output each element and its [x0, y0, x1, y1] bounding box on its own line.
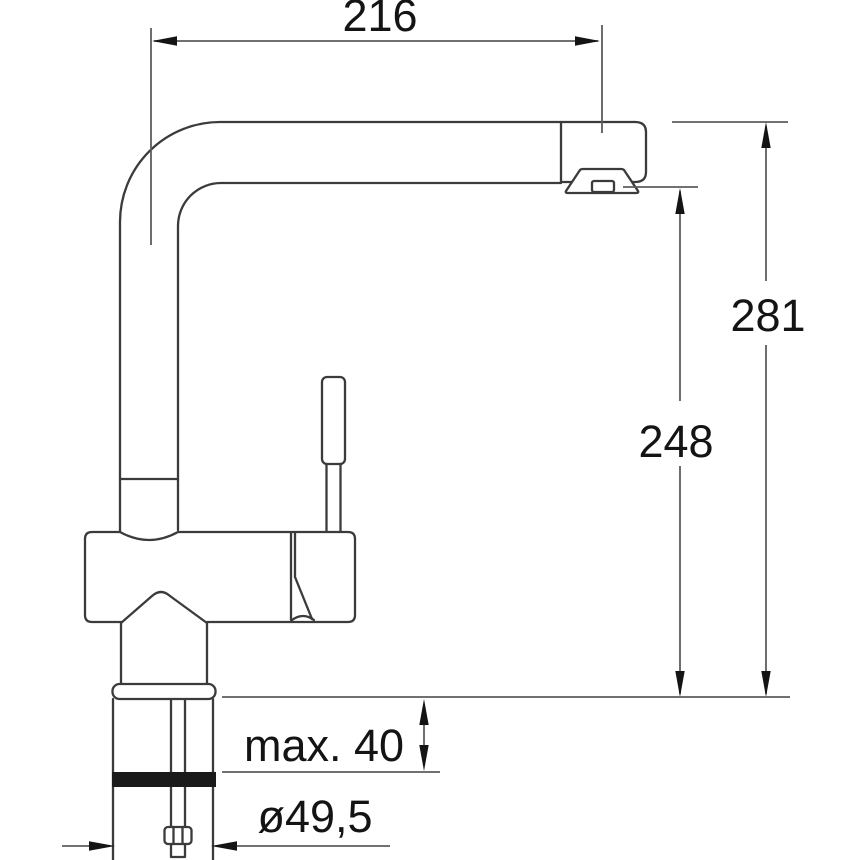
arrowhead-216-right: [575, 36, 600, 46]
faucet-dimension-drawing: 216 281 248 max. 40 ø49,5: [0, 0, 860, 860]
arrowhead-dia-right: [211, 841, 237, 850]
technical-drawing-canvas: 216 281 248 max. 40 ø49,5: [0, 0, 860, 860]
base-flange: [113, 684, 216, 699]
arrowhead-248-down: [675, 671, 684, 697]
stud-lower-end: [171, 844, 185, 857]
mixer-body: [85, 532, 355, 622]
label-overall-height: 281: [730, 290, 805, 341]
arrowhead-216-left: [152, 36, 177, 46]
arrowhead-max40-up: [419, 699, 428, 725]
fastening-nut: [165, 827, 192, 844]
seal-band: [112, 772, 216, 787]
label-max-mounting-thickness: max. 40: [244, 720, 404, 771]
arrowhead-dia-left: [89, 841, 115, 850]
spout-inner-contour: [178, 183, 561, 530]
base-cone: [121, 592, 207, 684]
handle-grip: [322, 377, 345, 464]
label-hole-diameter: ø49,5: [257, 791, 372, 842]
aerator-slot: [592, 181, 614, 192]
arrowhead-281-up: [761, 122, 770, 148]
handle-stem: [327, 464, 341, 531]
arrowhead-max40-down: [419, 745, 428, 771]
label-outlet-height: 248: [638, 416, 713, 467]
arrowhead-248-up: [675, 188, 684, 214]
swivel-seam-diagonal: [295, 533, 312, 619]
label-spout-reach: 216: [342, 0, 417, 41]
threaded-stud: [171, 699, 185, 827]
arrowhead-281-down: [761, 671, 770, 697]
dimension-labels: 216 281 248 max. 40 ø49,5: [244, 0, 806, 842]
